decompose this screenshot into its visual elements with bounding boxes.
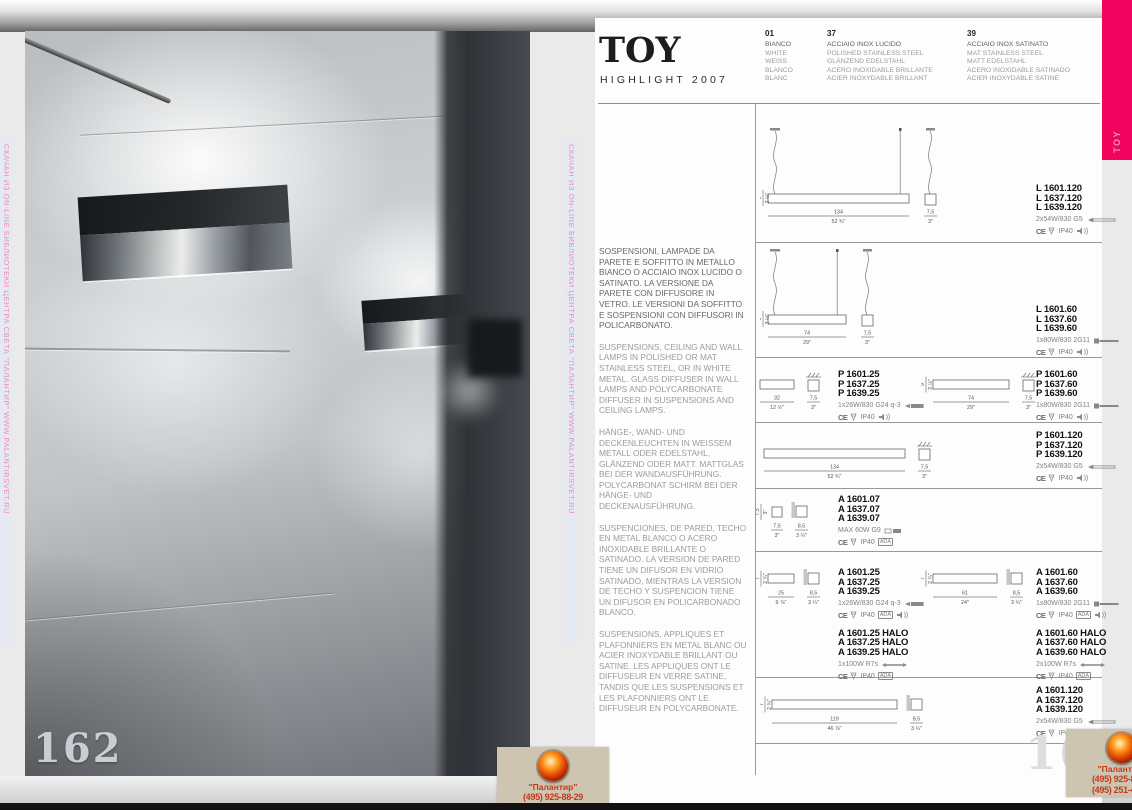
lamp-spec: 2x100W R7s [1036,661,1131,669]
svg-text:12 ½": 12 ½" [770,404,784,411]
lamp-spec: 2x54W/830 G5 [1036,216,1131,224]
finish-name: BLANC [765,75,813,84]
speaker-icon [878,413,890,421]
palantir-orb-icon [538,751,568,781]
svg-text:7,5: 7,5 [810,396,818,402]
lamp-spec: 1x100W R7s [838,661,933,669]
product-code: P 1639.60 [1036,389,1131,399]
watermark-text: СКАЧАН ИЗ ON-LINE БИБЛИОТЕКИ ЦЕНТРА СВЕТ… [565,144,577,514]
svg-text:7,5: 7,5 [921,465,929,471]
dimension-diagram: 11946 ⅞"8,53 ¼"72 ¾" [760,692,931,743]
palantir-stamp: "Палантир" (495) 925-88-29 (495) 251-47-… [497,747,609,810]
product-code-block: P 1601.120P 1637.120P 1639.1202x54W/830 … [1036,431,1131,483]
dimension-diagram: 7,53"8,53 ¼"7,53" [756,499,818,550]
dimension-diagram: 13452 ¾"7,53"93 ½" [760,124,947,237]
dimension-diagram: 6124"8,53 ¼"72 ¾" [921,566,1031,617]
finish-name: ACERO INOXIDABLE SATINADO [967,67,1097,76]
watermark-strip-middle: СКАЧАН ИЗ ON-LINE БИБЛИОТЕКИ ЦЕНТРА СВЕТ… [565,140,577,643]
stamp-phone: (495) 925-88-29 [497,792,609,803]
svg-text:119: 119 [830,717,839,723]
description-spanish: SUSPENCIONES, DE PARED, TECHO EN METAL B… [599,523,747,618]
finish-name: WHITE [765,50,813,59]
svg-text:25: 25 [778,591,784,597]
svg-text:32: 32 [774,396,780,402]
svg-text:3 ½": 3 ½" [927,379,934,390]
svg-text:9 ⅞": 9 ⅞" [776,600,787,606]
product-spec-table: 13452 ¾"7,53"93 ½"L 1601.120L 1637.120L … [756,110,1102,744]
svg-text:7,5: 7,5 [773,524,781,530]
finish-column: 39ACCIAIO INOX SATINATOMAT STAINLESS STE… [967,29,1097,84]
watermark-text: СКАЧАН ИЗ ON-LINE БИБЛИОТЕКИ ЦЕНТРА СВЕТ… [0,144,12,514]
lamp-spec: 1x80W/830 2G11 [1036,402,1131,410]
svg-text:3": 3" [811,405,816,411]
compact-tube-icon [1093,337,1123,345]
ip-rating: IP40 [1058,228,1072,235]
svg-text:52 ¾": 52 ¾" [828,474,842,480]
fluorescent-tube-icon [1086,718,1116,726]
ip-rating: IP40 [860,539,874,546]
f-symbol-icon [1048,227,1055,235]
dimension-diagram: 7429"7,53"93 ½" [921,370,1043,421]
svg-text:8,5: 8,5 [913,717,921,723]
wall-lamp-large [78,185,293,282]
stamp-phone: (495) 251-47-42 [1066,785,1132,796]
finish-name: ACCIAIO INOX LUCIDO [827,41,953,50]
product-code-block: P 1601.60P 1637.60P 1639.601x80W/830 2G1… [1036,370,1131,422]
blurred-wall-lamp [468,319,522,377]
product-code: A 1639.07 [838,514,933,524]
speaker-icon [1076,474,1088,482]
product-code: P 1639.25 [838,389,933,399]
ce-mark: CE [1036,611,1045,620]
ada-badge: ADA [878,538,893,546]
product-family-title: TOY [599,34,681,68]
svg-text:52 ¾": 52 ¾" [832,219,846,225]
finish-name: ACIER INOXYDABLE BRILLANT [827,75,953,84]
ce-mark: CE [838,611,847,620]
catalog-page: TOY HIGHLIGHT 2007 01BIANCOWHITEWEISSBLA… [595,18,1102,805]
svg-text:8,5: 8,5 [810,591,818,597]
svg-text:134: 134 [830,465,839,471]
f-symbol-icon [1048,474,1055,482]
halo-variant-block: A 1601.60 HALOA 1637.60 HALOA 1639.60 HA… [1036,629,1131,681]
product-code: A 1639.60 HALO [1036,648,1131,658]
finish-code: 37 [827,29,953,38]
description-french: SUSPENSIONS, APPLIQUES ET PLAFONNIERS EN… [599,629,747,714]
svg-text:46 ⅞": 46 ⅞" [828,726,842,732]
header-rule [598,103,1100,104]
spec-row: 259 ⅞"8,53 ¼"72 ¾"A 1601.25A 1637.25A 16… [756,552,1102,678]
svg-text:3": 3" [775,533,780,539]
dimension-diagram: 13452 ¾"7,53" [760,439,939,490]
ada-badge: ADA [1076,611,1091,619]
catalog-spread: 162 СКАЧАН ИЗ ON-LINE БИБЛИОТЕКИ ЦЕНТРА … [0,0,1132,810]
wall-pipe [25,33,171,104]
ip-rating: IP40 [1058,349,1072,356]
svg-text:61: 61 [962,591,968,597]
svg-text:7,5: 7,5 [1025,396,1033,402]
svg-text:3": 3" [865,340,870,346]
ada-badge: ADA [878,611,893,619]
wall-crack [25,348,290,353]
finish-name: MATT EDELSTAHL [967,58,1097,67]
finish-name: BIANCO [765,41,813,50]
finish-name: GLÄNZEND EDELSTAHL [827,58,953,67]
lamp-spec: MAX 60W G9 [838,527,933,535]
ce-mark: CE [1036,413,1045,422]
f-symbol-icon [850,611,857,619]
svg-text:2 ¾": 2 ¾" [928,573,934,584]
ce-mark: CE [838,538,847,547]
ip-rating: IP40 [1058,414,1072,421]
finish-code: 01 [765,29,813,38]
svg-text:3": 3" [1026,405,1031,411]
description-column: SOSPENSIONI, LAMPADE DA PARETE E SOFFITT… [599,246,747,725]
f-symbol-icon [1048,611,1055,619]
speaker-icon [1076,227,1088,235]
svg-text:7,5: 7,5 [927,210,935,216]
palantir-stamp: "Палантир" (495) 925-88-29 (495) 251-47-… [1066,729,1132,797]
lamp-spec: 1x26W/830 G24 q-3 [838,600,933,608]
certification-row: CEIP40ADA [838,538,933,547]
finish-column: 37ACCIAIO INOX LUCIDOPOLISHED STAINLESS … [827,29,953,84]
palantir-orb-icon [1107,733,1132,763]
halogen-capsule-icon [884,527,914,535]
finish-name: WEISS [765,58,813,67]
spec-row: 7429"7,53"93 ½"L 1601.60L 1637.60L 1639.… [756,243,1102,358]
svg-text:29": 29" [967,405,975,411]
certification-row: CEIP40 [1036,348,1131,357]
speaker-icon [1094,611,1106,619]
svg-text:9: 9 [760,197,763,200]
wall-crack [26,592,335,620]
svg-text:29": 29" [803,340,811,346]
ce-mark: CE [1036,474,1045,483]
svg-text:7: 7 [760,703,765,706]
svg-text:8,5: 8,5 [798,524,806,530]
svg-text:2 ¾": 2 ¾" [767,699,773,710]
product-code: L 1639.60 [1036,324,1131,334]
certification-row: CEIP40 [1036,413,1131,422]
halo-variant-block: A 1601.25 HALOA 1637.25 HALOA 1639.25 HA… [838,629,933,681]
svg-text:3 ¼": 3 ¼" [1011,600,1022,606]
certification-row: CEIP40ADA [838,611,933,620]
speaker-icon [1076,413,1088,421]
toy-index-tab: TOY [1102,0,1132,160]
svg-text:7: 7 [921,577,926,580]
speaker-icon [1076,348,1088,356]
linear-halogen-icon [881,661,911,669]
lamp-spec: 2x54W/830 G5 [1036,718,1131,726]
svg-text:3 ¼": 3 ¼" [796,533,807,539]
f-symbol-icon [850,413,857,421]
svg-text:2 ¾": 2 ¾" [763,573,769,584]
speaker-icon [896,611,908,619]
ip-rating: IP40 [1058,612,1072,619]
bottom-black-bar [0,803,1132,810]
lamp-spec: 1x26W/830 G24 q-3 [838,402,933,410]
product-code: A 1639.25 HALO [838,648,933,658]
linear-halogen-icon [1079,661,1109,669]
photo-dark-wall [434,31,530,776]
finish-name: ACCIAIO INOX SATINATO [967,41,1097,50]
product-photo: 162 [25,31,530,776]
description-german: HÄNGE-, WAND- UND DECKENLEUCHTEN IN WEIS… [599,427,747,512]
product-code-block: A 1601.60A 1637.60A 1639.601x80W/830 2G1… [1036,568,1131,681]
svg-text:7,5: 7,5 [864,331,872,337]
finish-name: ACIER INOXYDABLE SATINE [967,75,1097,84]
stamp-name: "Палантир" [497,782,609,792]
certification-row: CEIP40ADA [1036,611,1131,620]
lamp-spec: 1x80W/830 2G11 [1036,600,1131,608]
compact-tube-icon [1093,402,1123,410]
svg-text:3": 3" [928,219,933,225]
page-number-left: 162 [33,725,123,772]
lamp-spec: 1x80W/830 2G11 [1036,337,1131,345]
product-code-block: L 1601.120L 1637.120L 1639.1202x54W/830 … [1036,184,1131,236]
svg-text:3": 3" [763,509,769,514]
dimension-diagram: 3212 ½"7,53" [756,370,828,421]
collection-subtitle: HIGHLIGHT 2007 [600,74,728,86]
product-code-block: A 1601.25A 1637.25A 1639.251x26W/830 G24… [838,568,933,681]
f-symbol-icon [850,538,857,546]
ip-rating: IP40 [860,612,874,619]
finish-name: ACERO INOXIDABLE BRILLANTE [827,67,953,76]
spec-row: 13452 ¾"7,53"93 ½"L 1601.120L 1637.120L … [756,110,1102,243]
svg-text:3 ¼": 3 ¼" [808,600,819,606]
ip-rating: IP40 [1058,475,1072,482]
f-symbol-icon [1048,348,1055,356]
compact-tube-icon [1093,600,1123,608]
certification-row: CEIP40 [1036,474,1131,483]
product-code: A 1639.120 [1036,705,1131,715]
product-code-block: P 1601.25P 1637.25P 1639.251x26W/830 G24… [838,370,933,422]
product-code: L 1639.120 [1036,203,1131,213]
description-english: SUSPENSIONS, CEILING AND WALL LAMPS IN P… [599,342,747,416]
svg-text:3 ½": 3 ½" [764,192,771,203]
description-italian: SOSPENSIONI, LAMPADE DA PARETE E SOFFITT… [599,246,747,331]
watermark-strip-left: СКАЧАН ИЗ ON-LINE БИБЛИОТЕКИ ЦЕНТРА СВЕТ… [0,140,12,643]
svg-text:134: 134 [834,210,843,216]
ce-mark: CE [1036,227,1045,236]
certification-row: CEIP40 [838,413,933,422]
svg-text:74: 74 [804,331,810,337]
svg-text:3 ½": 3 ½" [764,313,771,324]
svg-text:74: 74 [968,396,974,402]
tab-label: TOY [1112,130,1122,153]
fluorescent-tube-icon [1086,463,1116,471]
dimension-diagram: 259 ⅞"8,53 ¼"72 ¾" [756,566,828,617]
svg-text:3": 3" [922,474,927,480]
svg-text:7,5: 7,5 [756,508,761,516]
ip-rating: IP40 [860,414,874,421]
certification-row: CEIP40 [1036,227,1131,236]
svg-text:9: 9 [760,318,763,321]
product-code-block: L 1601.60L 1637.60L 1639.601x80W/830 2G1… [1036,305,1131,357]
finish-name: MAT STAINLESS STEEL [967,50,1097,59]
ce-mark: CE [838,413,847,422]
finish-name: POLISHED STAINLESS STEEL [827,50,953,59]
stamp-name: "Палантир" [1066,764,1132,774]
stamp-phone: (495) 925-88-29 [1066,774,1132,785]
finish-code: 39 [967,29,1097,38]
finish-legend: 01BIANCOWHITEWEISSBLANCOBLANC37ACCIAIO I… [765,29,1111,84]
fluorescent-tube-icon [1086,216,1116,224]
f-symbol-icon [1048,413,1055,421]
finish-column: 01BIANCOWHITEWEISSBLANCOBLANC [765,29,813,84]
spec-row: 13452 ¾"7,53"P 1601.120P 1637.120P 1639.… [756,423,1102,489]
dimension-diagram: 7429"7,53"93 ½" [760,245,884,358]
product-code: A 1639.60 [1036,587,1131,597]
svg-text:9: 9 [921,383,926,386]
product-code: A 1639.25 [838,587,933,597]
spec-row: 3212 ½"7,53"P 1601.25P 1637.25P 1639.251… [756,358,1102,423]
spec-row: 7,53"8,53 ¼"7,53"A 1601.07A 1637.07A 163… [756,489,1102,552]
product-code: P 1639.120 [1036,450,1131,460]
svg-text:24": 24" [961,600,969,606]
lamp-spec: 2x54W/830 G5 [1036,463,1131,471]
svg-text:8,5: 8,5 [1013,591,1021,597]
product-code-block: A 1601.07A 1637.07A 1639.07MAX 60W G9CEI… [838,495,933,547]
svg-text:7: 7 [756,577,761,580]
svg-text:3 ¼": 3 ¼" [911,726,922,732]
finish-name: BLANCO [765,67,813,76]
ce-mark: CE [1036,348,1045,357]
